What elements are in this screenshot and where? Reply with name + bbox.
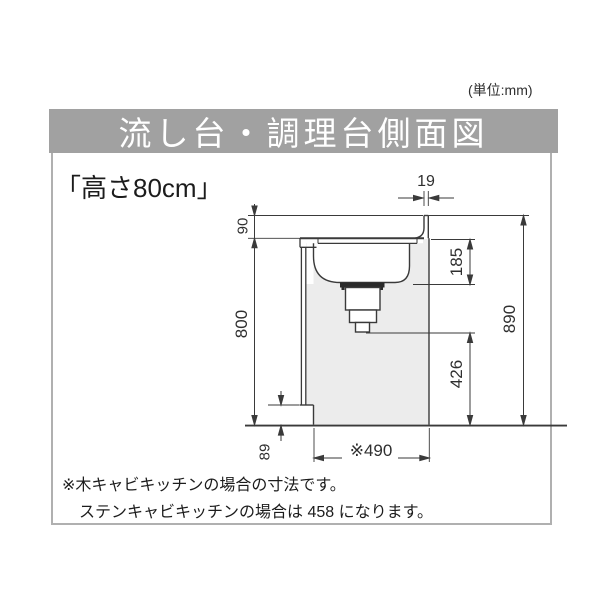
sink-bowl bbox=[314, 238, 418, 282]
dim-counter-height: 800 bbox=[232, 310, 252, 338]
dim-total-height: 890 bbox=[500, 305, 520, 333]
height-caption: 「高さ80cm」 bbox=[55, 168, 223, 205]
dim-backsplash-height: 90 bbox=[235, 218, 252, 235]
dim-toe-kick-height: 89 bbox=[257, 444, 274, 461]
dim-backsplash-width: 19 bbox=[417, 173, 435, 191]
dim-base-depth: ※490 bbox=[350, 441, 393, 461]
footnote-line2: ステンキャビキッチンの場合は 458 になります。 bbox=[79, 498, 433, 522]
backsplash bbox=[412, 216, 428, 239]
diagram-page: (単位:mm) 流し台・調理台側面図 「高さ80cm」 bbox=[0, 0, 600, 600]
dim-sink-depth: 185 bbox=[447, 248, 467, 276]
footnote-line1: ※木キャビキッチンの場合の寸法です。 bbox=[62, 471, 346, 495]
dim-drain-clearance: 426 bbox=[447, 360, 467, 388]
